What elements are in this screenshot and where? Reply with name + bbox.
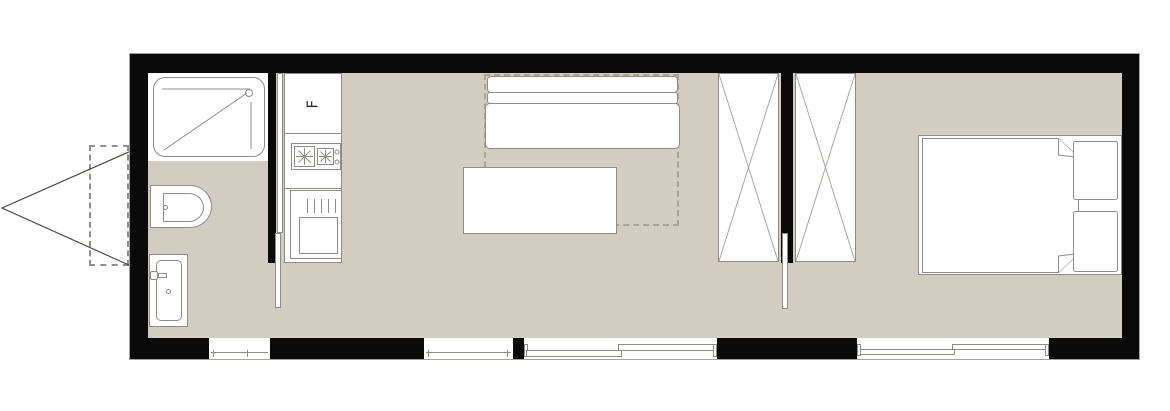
window-panel-left (860, 349, 955, 355)
double-bed (918, 135, 1122, 275)
toilet-flush-icon (163, 205, 168, 210)
counter-divider (285, 188, 341, 189)
drying-rack-icon (307, 199, 308, 213)
door-panel-left (526, 350, 622, 357)
cooktop-burners-icon (291, 143, 341, 170)
faucet-icon (150, 271, 158, 280)
door-panel-right (618, 344, 714, 351)
living-room-window (424, 338, 513, 359)
bedroom-sliding-door (782, 233, 788, 309)
trailer-hitch-triangle (0, 140, 132, 275)
toilet (150, 185, 212, 228)
wardrobe-left (718, 73, 779, 262)
wardrobe-x-icon (796, 74, 855, 261)
floor-plan: F (0, 0, 1170, 411)
shower-tray (153, 77, 265, 157)
bathroom-sink (149, 254, 188, 327)
wardrobe-right (795, 73, 856, 262)
pillow-top (1074, 142, 1118, 200)
bathroom-door-pocket (277, 73, 283, 233)
fridge-label: F (304, 99, 322, 108)
toilet-bowl (163, 193, 204, 222)
kitchen-sink-basin (299, 217, 338, 254)
bathroom-sliding-door (275, 233, 281, 308)
coffee-table (463, 167, 617, 234)
sliding-glass-door (524, 338, 717, 359)
sofa-back-cushion (487, 76, 678, 93)
sofa-seat (485, 103, 680, 149)
pillow-bottom (1074, 212, 1118, 272)
kitchen-sink-cabinet (290, 190, 342, 259)
faucet-spout-icon (158, 273, 167, 278)
window-panel-right (952, 344, 1046, 350)
wardrobe-x-icon (719, 74, 778, 261)
blanket (923, 139, 1079, 273)
bathroom-window (209, 338, 270, 359)
kitchen-counter: F (284, 73, 342, 263)
refrigerator: F (285, 74, 341, 134)
shower-zone (148, 73, 270, 161)
bedroom-sliding-window (857, 338, 1049, 359)
shower-drain-icon (154, 78, 264, 156)
sink-drain-icon (166, 289, 171, 294)
